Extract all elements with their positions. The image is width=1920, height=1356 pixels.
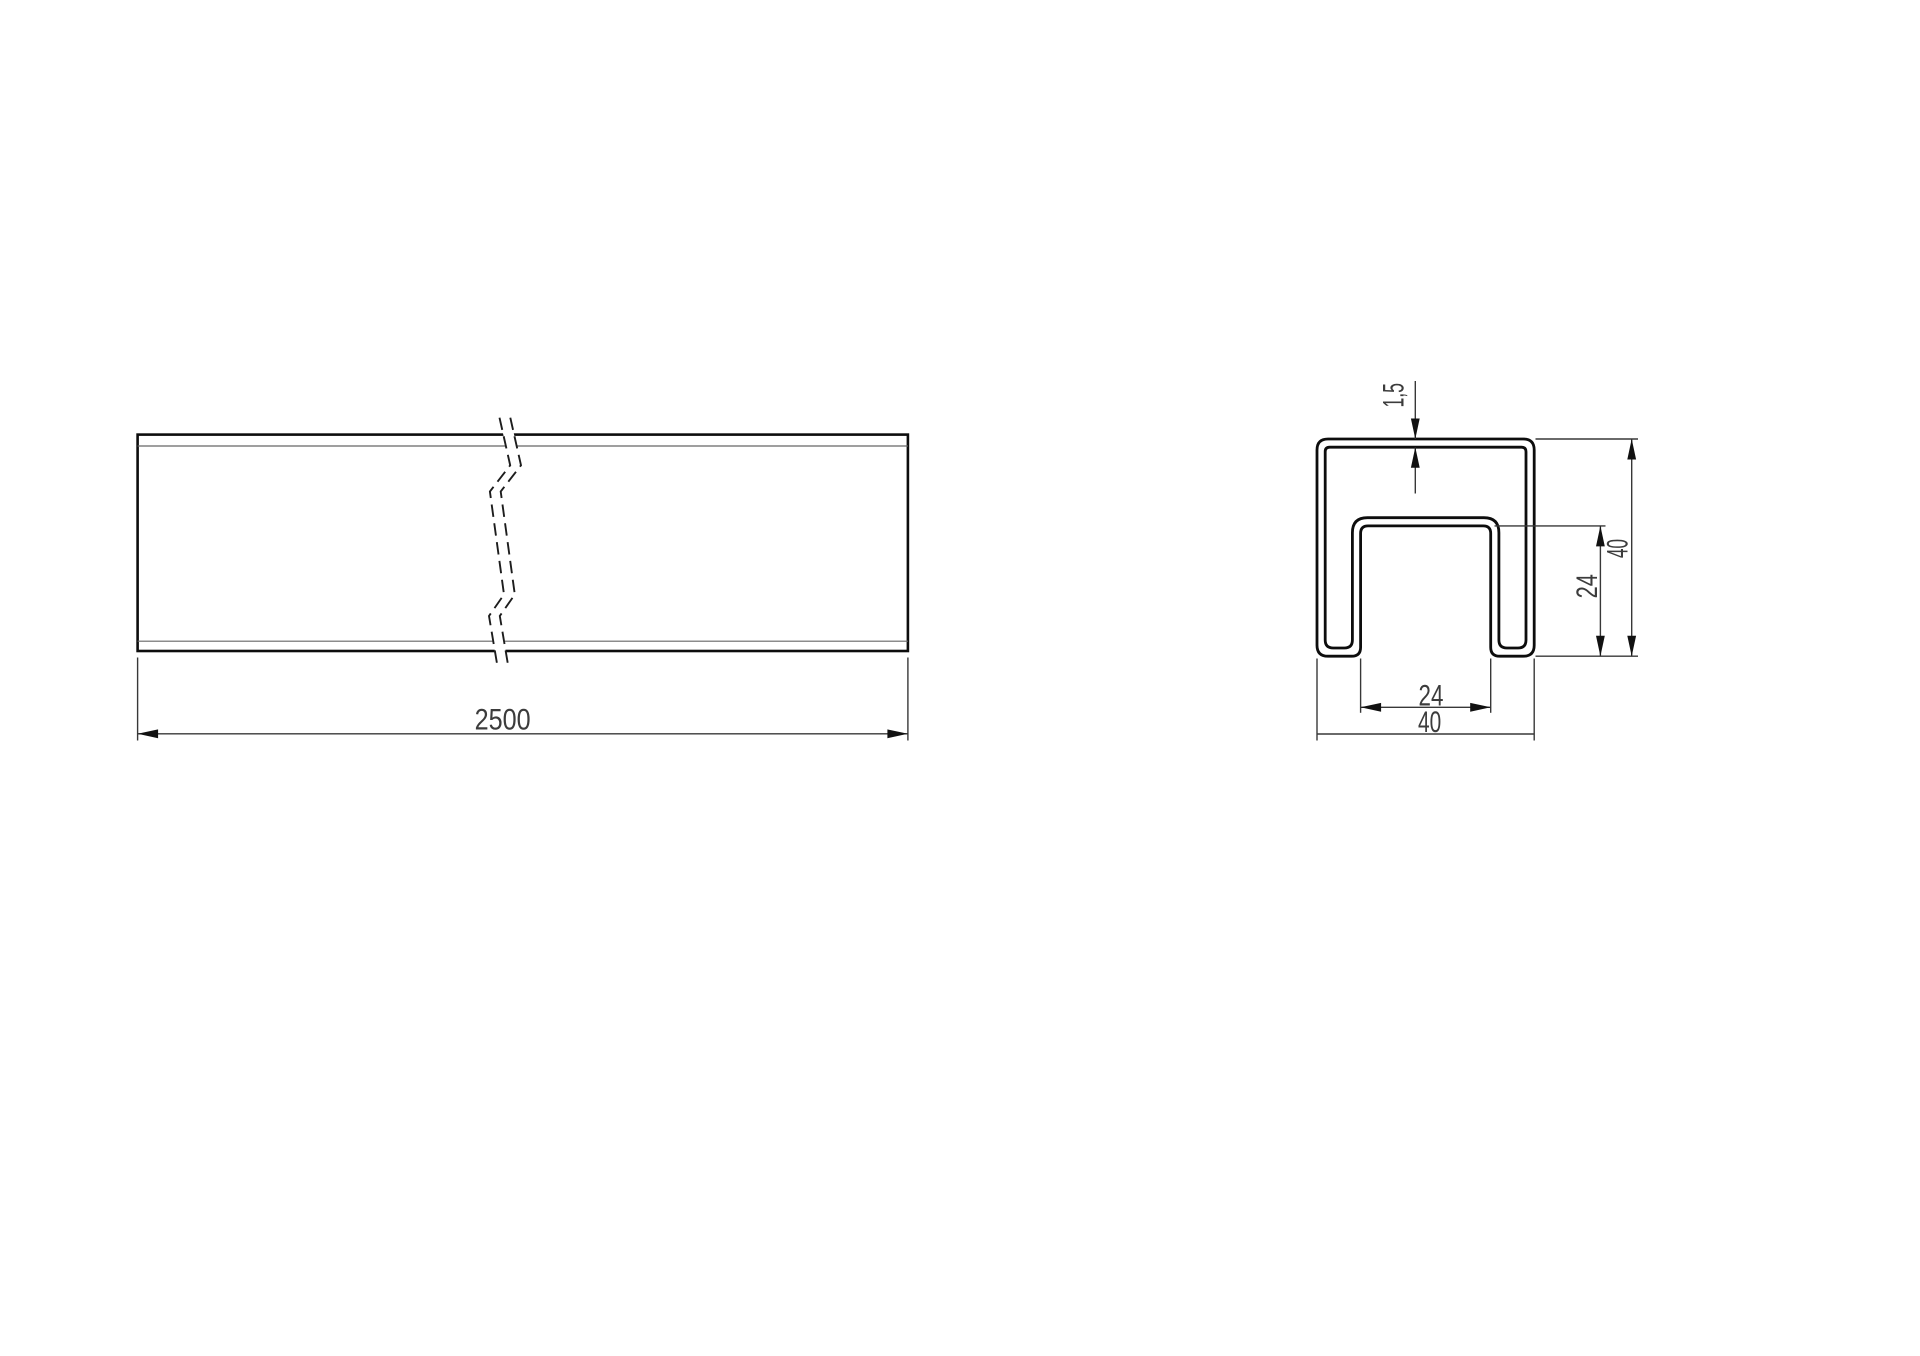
svg-text:1,5: 1,5 xyxy=(1379,383,1411,408)
svg-text:40: 40 xyxy=(1603,539,1635,558)
svg-text:2500: 2500 xyxy=(475,705,531,737)
svg-text:24: 24 xyxy=(1572,574,1604,598)
svg-text:40: 40 xyxy=(1418,707,1441,739)
